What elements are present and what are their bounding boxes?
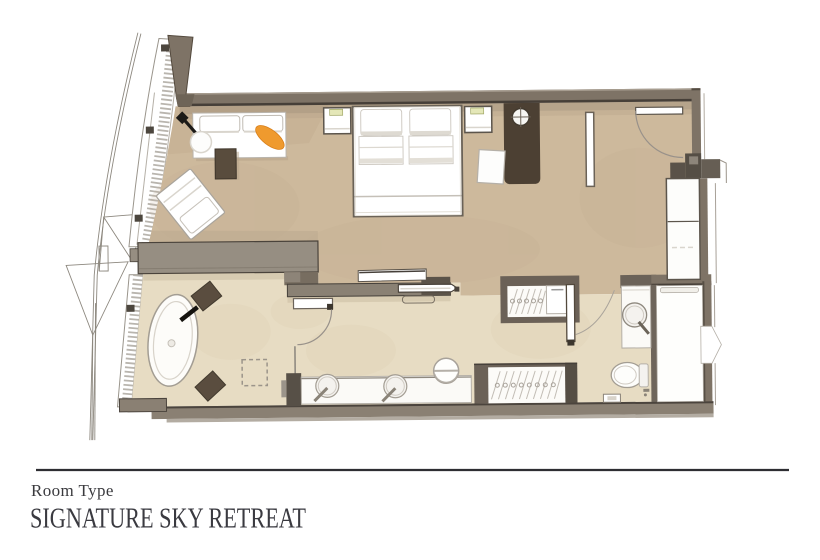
svg-text:SIGNATURE SKY RETREAT: SIGNATURE SKY RETREAT	[30, 504, 306, 535]
svg-text:Room Type: Room Type	[31, 481, 114, 500]
